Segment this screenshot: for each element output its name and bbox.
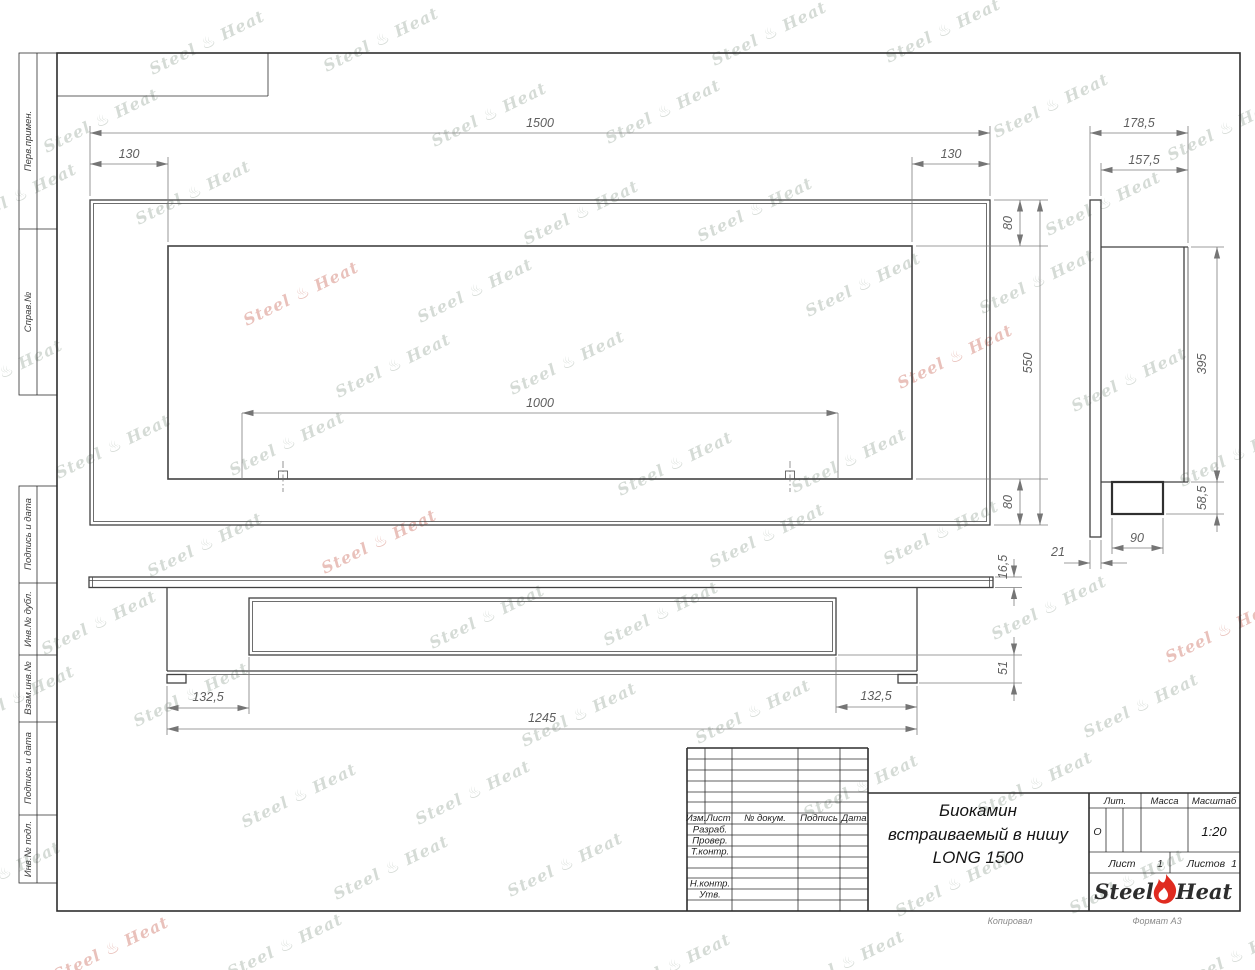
footer-format: Формат А3 — [1132, 916, 1181, 926]
dim-bottom-inset-right: 132,5 — [860, 689, 891, 703]
col-list: Лист — [705, 813, 731, 824]
sheet-label: Лист — [1107, 858, 1135, 870]
dim-front-inset-right: 130 — [941, 147, 962, 161]
mounting-tab-left — [279, 461, 288, 492]
mass-label: Масса — [1150, 796, 1178, 807]
scale-value: 1:20 — [1201, 824, 1227, 839]
dim-bottom-inset-left: 132,5 — [192, 690, 223, 704]
col-izm: Изм. — [686, 813, 706, 824]
dim-front-burner: 1000 — [526, 396, 554, 410]
sheets-label: Листов — [1186, 858, 1226, 870]
logo-steel-text: Steel — [1094, 879, 1154, 904]
strip-label-podpis-data-2: Подпись и дата — [23, 732, 34, 804]
lit-value: О — [1093, 826, 1101, 838]
row-utv: Утв. — [698, 890, 721, 901]
footer-copied: Копировал — [988, 916, 1033, 926]
doc-title-line1: Биокамин — [939, 801, 1018, 820]
dim-front-bottom-border: 80 — [1001, 495, 1015, 509]
foot-right — [898, 675, 917, 684]
dim-side-body-height: 395 — [1195, 354, 1209, 375]
side-view: 178,5 157,5 395 58,5 90 — [1050, 116, 1224, 569]
row-prover: Провер. — [692, 836, 727, 847]
dim-front-top-border: 80 — [1001, 216, 1015, 230]
title-block: Изм. Лист № докум. Подпись Дата Разраб. … — [686, 748, 1240, 926]
scale-label: Масштаб — [1192, 796, 1237, 807]
strip-label-vzam-inv: Взам.инв.№ — [23, 661, 34, 714]
logo-heat-text: Heat — [1175, 879, 1233, 904]
strip-label-inv-podl: Инв.№ подл. — [23, 821, 34, 877]
bottom-view: 16,5 51 132,5 132,5 1245 — [89, 555, 1022, 735]
front-view: 1500 130 130 80 550 80 1000 — [90, 116, 1048, 525]
dim-side-box-height: 58,5 — [1195, 486, 1209, 510]
row-tkontr: Т.контр. — [691, 847, 729, 858]
blueprint-page: Steel ♨ HeatSteel ♨ HeatSteel ♨ HeatStee… — [0, 0, 1255, 970]
col-doc: № докум. — [744, 813, 786, 824]
dim-bottom-body: 1245 — [528, 711, 556, 725]
flame-icon — [1154, 874, 1176, 904]
strip-label-sprav-no: Справ.№ — [23, 292, 34, 333]
drawing-frame: Перв.примен. Справ.№ Подпись и дата Инв.… — [19, 53, 1240, 911]
dim-bottom-base: 51 — [996, 661, 1010, 675]
strip-label-perv-primen: Перв.примен. — [23, 111, 34, 172]
sheets-value: 1 — [1231, 858, 1237, 870]
dim-side-body-depth: 157,5 — [1128, 153, 1159, 167]
dim-side-depth: 178,5 — [1123, 116, 1154, 130]
dim-front-width: 1500 — [526, 116, 554, 130]
steelheat-logo: Steel Heat — [1094, 874, 1232, 904]
doc-title-line3: LONG 1500 — [933, 848, 1024, 867]
row-razrab: Разраб. — [693, 825, 727, 836]
lit-label: Лит. — [1103, 796, 1126, 807]
frame-left-strip: Перв.примен. Справ.№ Подпись и дата Инв.… — [19, 53, 57, 883]
doc-title-line2: встраиваемый в нишу — [888, 825, 1069, 844]
sheet-value: 1 — [1157, 858, 1163, 870]
dim-side-box-width: 90 — [1130, 531, 1144, 545]
strip-label-podpis-data-1: Подпись и дата — [23, 498, 34, 570]
dim-bottom-flange: 16,5 — [996, 555, 1010, 579]
col-data: Дата — [840, 813, 866, 824]
strip-label-inv-dubl: Инв.№ дубл. — [23, 591, 34, 647]
row-nkontr: Н.контр. — [690, 879, 730, 890]
technical-drawing: Перв.примен. Справ.№ Подпись и дата Инв.… — [0, 0, 1255, 970]
dim-front-inset-left: 130 — [119, 147, 140, 161]
burner-box — [1112, 482, 1163, 514]
foot-left — [167, 675, 186, 684]
mounting-tab-right — [786, 461, 795, 492]
col-podpis: Подпись — [800, 813, 838, 824]
dim-front-height: 550 — [1021, 353, 1035, 374]
dim-side-flange: 21 — [1050, 545, 1065, 559]
